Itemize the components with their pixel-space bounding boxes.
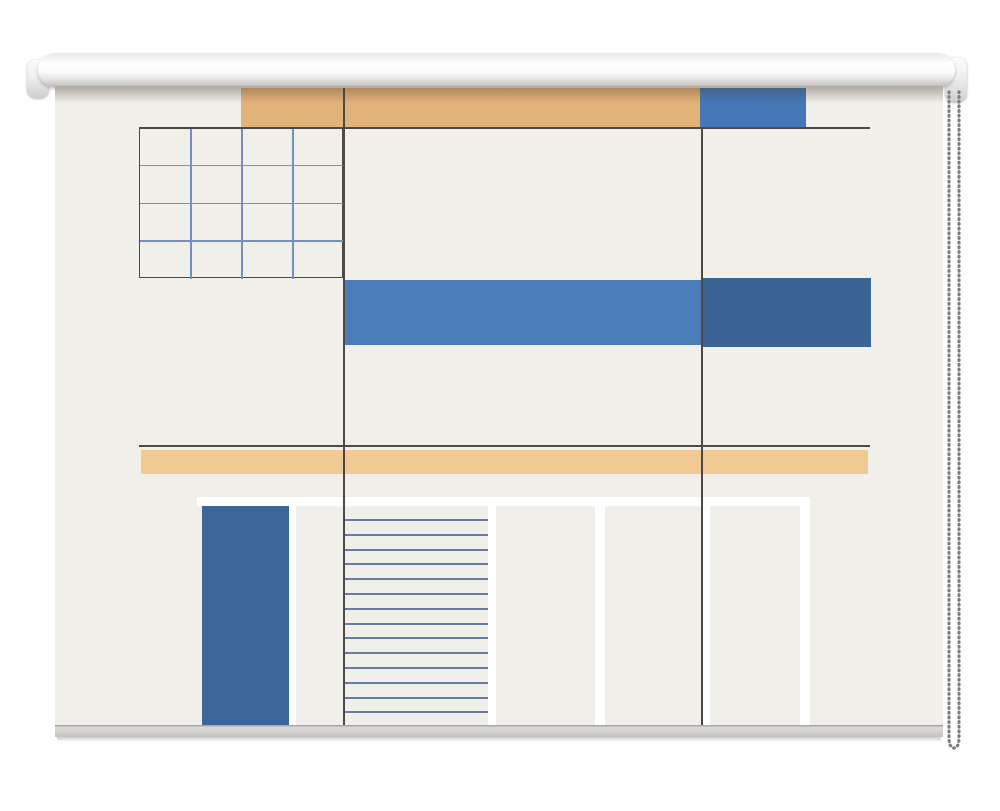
facade-white-bar-5 [800, 506, 810, 726]
shutter-stripes [345, 652, 488, 654]
shutter-stripes [345, 608, 488, 610]
shutter-stripes [345, 667, 488, 669]
v-rule-left [343, 88, 345, 730]
shutter-stripes [345, 534, 488, 536]
shutter-stripes [345, 578, 488, 580]
facade-white-bar-2 [488, 506, 496, 726]
grid-line-h [140, 203, 344, 205]
shutter-stripes [345, 519, 488, 521]
shutter-stripes [345, 549, 488, 551]
v-rule-right [701, 127, 703, 726]
bottom-hem-bar [55, 725, 943, 737]
grid-line-h [140, 240, 344, 242]
shutter-stripes [345, 697, 488, 699]
grid-line-h [140, 165, 344, 167]
artwork-layer [55, 86, 943, 737]
shutter-stripes [345, 682, 488, 684]
print-grid [139, 127, 343, 278]
chain-cord [949, 92, 959, 748]
shutter-stripes [345, 637, 488, 639]
scene [0, 0, 1000, 811]
shutter-stripes [345, 711, 488, 713]
door-panel-blue [202, 506, 289, 726]
facade-white-band [197, 497, 810, 506]
shutter-stripes [345, 563, 488, 565]
facade-white-bar-1 [289, 506, 296, 726]
facade-white-bar-3 [595, 506, 605, 726]
h-rule-top [139, 127, 870, 129]
hem-shadow [57, 737, 941, 742]
roller-shadow [55, 86, 943, 103]
h-rule-middle [139, 445, 870, 447]
chain-beads [949, 92, 959, 748]
shutter-stripes [345, 623, 488, 625]
roller-tube [38, 53, 955, 87]
band-mid-dark-blue [701, 278, 871, 347]
shutter-stripes [345, 593, 488, 595]
band-lower-tan [141, 450, 868, 474]
blind-fabric [55, 86, 943, 737]
band-mid-light-blue [343, 280, 701, 345]
